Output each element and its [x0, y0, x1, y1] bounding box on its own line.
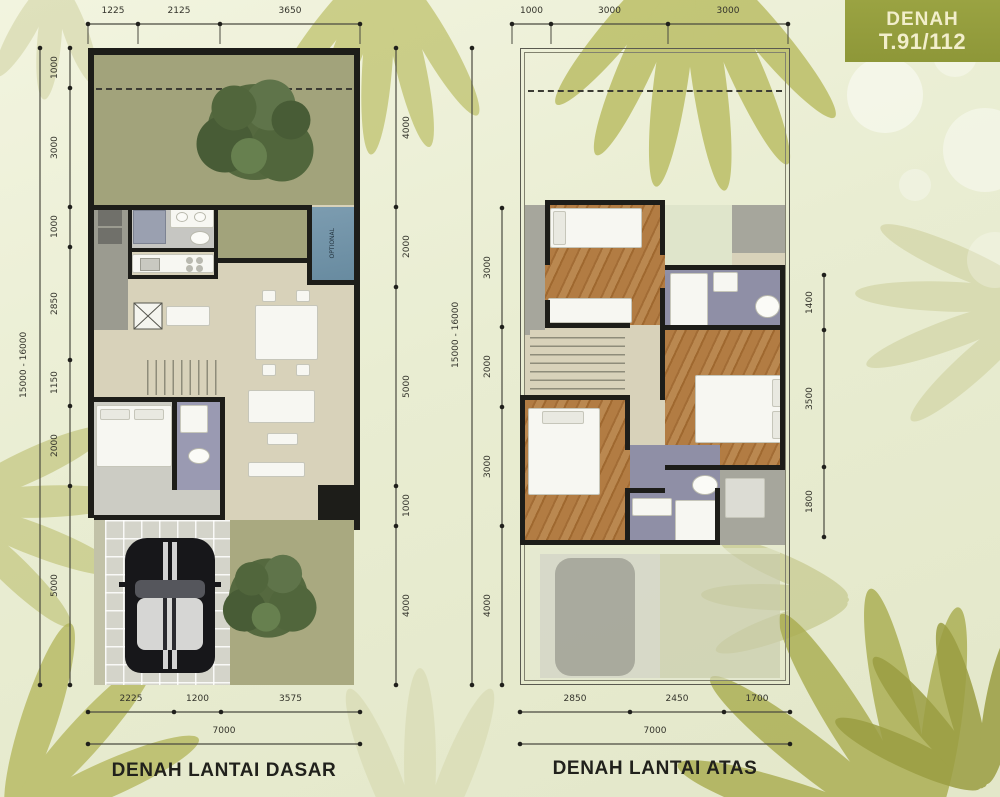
wardrobe [725, 478, 765, 518]
page: OPTIONAL [0, 0, 1000, 797]
pillow [542, 411, 584, 424]
dim: 2000 [48, 406, 62, 486]
upper-floor-plan [520, 48, 790, 685]
dim-total-bottom-upper [512, 736, 798, 752]
wall [218, 258, 307, 263]
car-mirror [119, 582, 127, 587]
dim-overall-left-upper [464, 40, 480, 695]
dim-chain-top-ground [80, 14, 370, 48]
stairs-upper [530, 330, 625, 400]
wall [520, 395, 525, 545]
shower-tray [675, 500, 718, 543]
dim: 4000 [400, 526, 414, 685]
stove-burner [196, 265, 203, 272]
wall [545, 200, 550, 265]
wall [780, 265, 785, 330]
wall-carport-edge [94, 515, 225, 520]
wall [128, 275, 218, 279]
dim: 1000 [512, 6, 551, 17]
dim: 3000 [551, 6, 668, 17]
bench [166, 306, 210, 326]
dim: 2850 [520, 694, 630, 705]
dim-chain-top-upper [504, 14, 800, 48]
balcony [732, 205, 785, 253]
dim: 4000 [400, 48, 414, 207]
pillow [553, 211, 566, 245]
wall [520, 395, 630, 400]
dim: 2000 [481, 327, 495, 407]
upper-floor-caption: DENAH LANTAI ATAS [510, 758, 800, 780]
dim-chain-bottom-ground [80, 704, 370, 720]
washbasin-counter [632, 498, 672, 516]
outdoor-unit [98, 210, 122, 226]
ground-floor-caption: DENAH LANTAI DASAR [68, 760, 380, 782]
stove-burner [186, 257, 193, 264]
badge-title: DENAH [886, 9, 959, 30]
kitchen-sink [140, 258, 160, 271]
shower-tray [670, 273, 708, 327]
washbasin [176, 212, 188, 222]
dim: 2450 [630, 694, 724, 705]
setback-dashed-line [528, 90, 782, 92]
dim: 5000 [48, 486, 62, 685]
wall [665, 325, 785, 330]
stove-burner [186, 265, 193, 272]
dining-chair [262, 364, 276, 376]
yard-tree [206, 538, 331, 658]
sofa-bench [248, 462, 305, 477]
wall [630, 488, 665, 493]
wall [88, 48, 360, 55]
wall [318, 485, 354, 520]
dim: 3575 [221, 694, 360, 705]
wall [307, 205, 312, 285]
wall [625, 488, 630, 545]
pillow [134, 409, 164, 420]
ghost-lawn [660, 554, 780, 678]
wall [307, 280, 354, 285]
wall [720, 465, 785, 470]
stairs-ground [140, 360, 220, 395]
dining-chair [262, 290, 276, 302]
wall [630, 540, 720, 545]
wall [128, 205, 132, 275]
wall [88, 48, 94, 518]
garden-tree [170, 60, 340, 210]
pillow [100, 409, 130, 420]
dim: 3650 [220, 6, 360, 17]
dim: 2000 [400, 207, 414, 287]
wall-bedroom-top [94, 397, 225, 402]
wall [520, 540, 630, 545]
car [125, 538, 215, 673]
stove-burner [196, 257, 203, 264]
wall [660, 288, 665, 330]
daybed [548, 298, 632, 323]
garden-lawn-strip [218, 205, 307, 258]
dim: 3000 [668, 6, 788, 17]
wall-bedroom-right [220, 397, 225, 520]
wall [715, 488, 720, 545]
wall [660, 200, 665, 255]
roof-gap [665, 205, 732, 270]
pool-label: OPTIONAL [326, 228, 340, 258]
dim: 1700 [724, 694, 790, 705]
ground-floor-plan: OPTIONAL [88, 48, 360, 685]
dim: 3000 [481, 208, 495, 327]
dim-overall-left-ground [32, 40, 48, 695]
wall [545, 200, 665, 205]
washbasin-counter [713, 272, 738, 292]
dim: 1150 [48, 360, 62, 406]
dim: 3000 [48, 88, 62, 207]
car-windshield [135, 580, 205, 598]
sofa [248, 390, 315, 423]
dim-chain-left-ground [62, 40, 78, 695]
car-roof [137, 598, 203, 650]
wall [128, 248, 218, 252]
wall [665, 265, 785, 270]
dim: 1000 [400, 486, 414, 526]
dining-chair [296, 290, 310, 302]
shower-tray [180, 405, 208, 433]
wall [545, 323, 630, 328]
dim: 1225 [88, 6, 138, 17]
plan-type-badge: DENAH T.91/112 [845, 0, 1000, 62]
dining-chair [296, 364, 310, 376]
shower-area [133, 210, 166, 244]
dim-total-bottom-ground [80, 736, 370, 752]
dim: 1400 [803, 275, 817, 330]
washbasin [194, 212, 206, 222]
ghost-car [555, 558, 635, 676]
dim-overall: 15000 - 16000 [449, 270, 463, 400]
dim: 5000 [400, 287, 414, 486]
dim-overall: 15000 - 16000 [17, 300, 31, 430]
toilet [190, 231, 210, 245]
wall [214, 205, 218, 275]
wall [172, 402, 177, 490]
dim-total: 7000 [520, 726, 790, 737]
dim: 1800 [803, 467, 817, 537]
coffee-table [267, 433, 298, 445]
void-shaft [133, 302, 163, 330]
dim: 1000 [48, 48, 62, 88]
dim: 1000 [48, 207, 62, 247]
left-ledge [525, 205, 545, 335]
dim-chain-right-upper [816, 267, 832, 545]
dim: 2225 [88, 694, 174, 705]
dining-table [255, 305, 318, 360]
pool: OPTIONAL [312, 207, 354, 280]
dim-total: 7000 [88, 726, 360, 737]
dim: 3500 [803, 330, 817, 467]
wall [780, 330, 785, 470]
wall [625, 400, 630, 450]
wall-house-front [94, 205, 312, 210]
dim: 1200 [174, 694, 221, 705]
dim: 3000 [481, 407, 495, 526]
badge-subtitle: T.91/112 [879, 30, 966, 54]
wall [660, 330, 665, 400]
car-mirror [213, 582, 221, 587]
toilet [755, 295, 780, 318]
carport-side-lawn [94, 520, 105, 685]
dim: 4000 [481, 526, 495, 685]
dim: 2850 [48, 247, 62, 360]
toilet [188, 448, 210, 464]
outdoor-unit [98, 228, 122, 244]
dim: 2125 [138, 6, 220, 17]
dim-chain-bottom-upper [512, 704, 798, 720]
dim-chain-left-upper [494, 200, 510, 695]
wall [354, 48, 360, 530]
